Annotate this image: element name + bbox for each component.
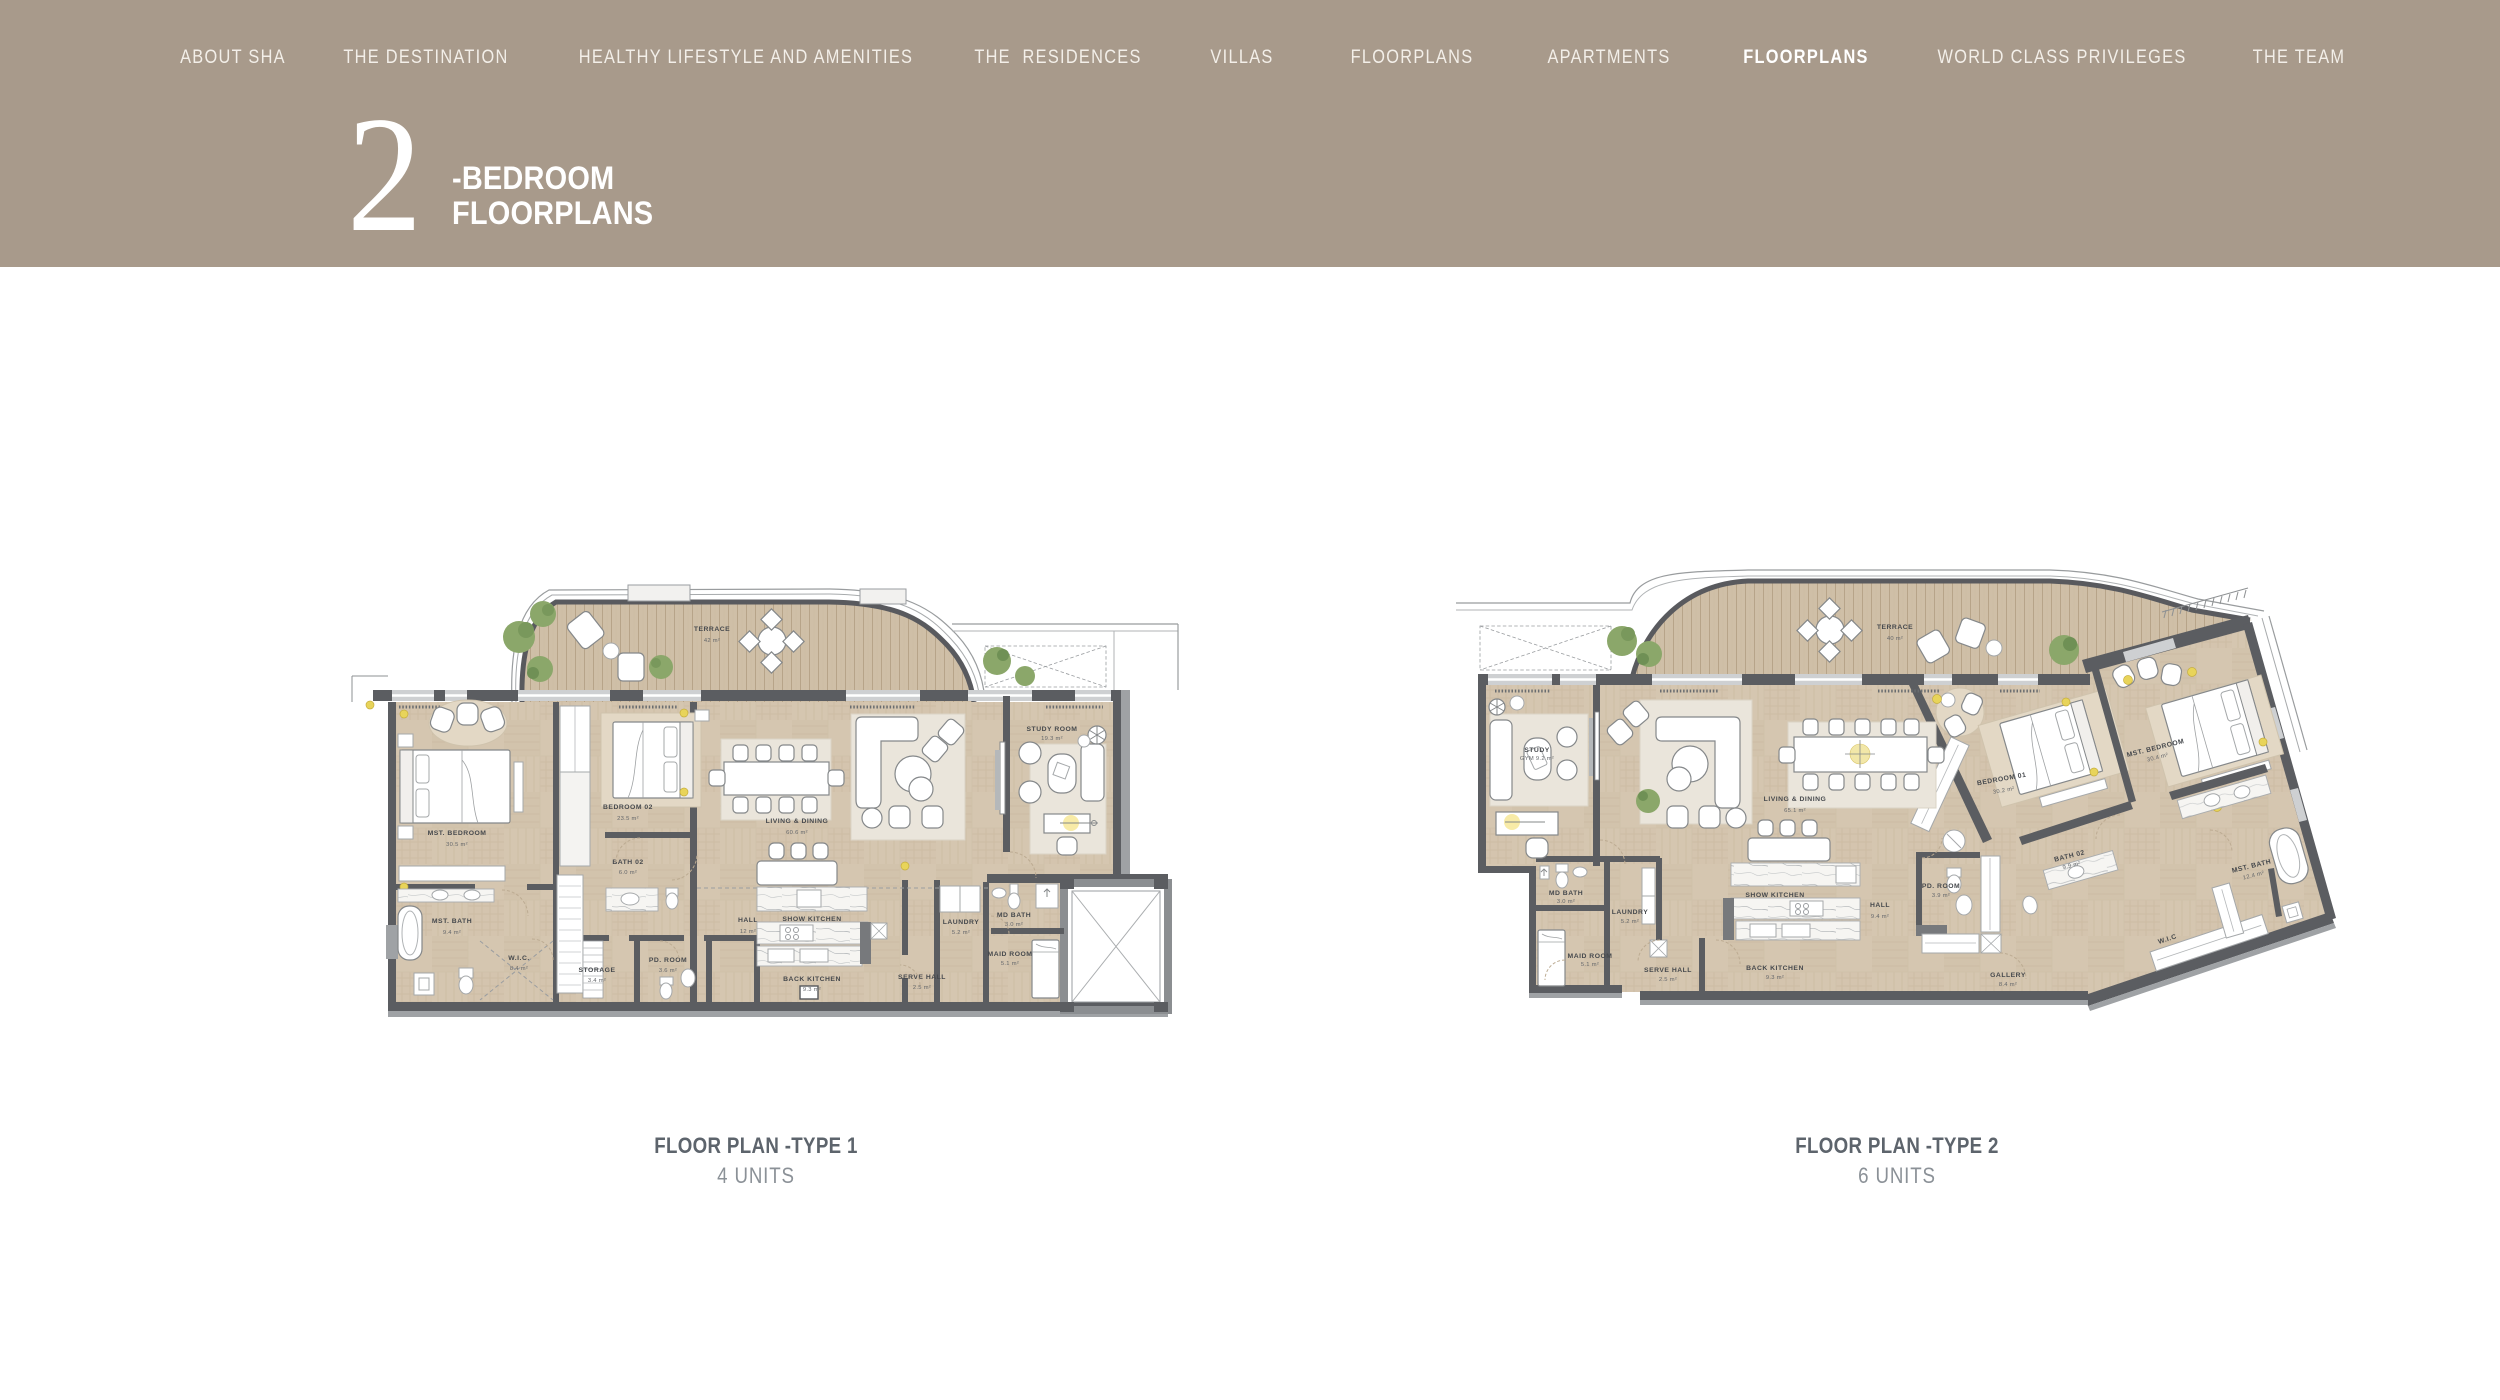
svg-text:9.3 m²: 9.3 m²	[803, 987, 821, 993]
svg-text:SERVE HALL: SERVE HALL	[1644, 967, 1692, 974]
svg-text:40 m²: 40 m²	[1887, 636, 1903, 642]
svg-text:3.9 m²: 3.9 m²	[1932, 893, 1950, 899]
svg-text:MST. BATH: MST. BATH	[432, 918, 472, 925]
svg-text:GALLERY: GALLERY	[1990, 972, 2026, 979]
svg-text:LIVING & DINING: LIVING & DINING	[766, 818, 829, 825]
svg-text:SERVE HALL: SERVE HALL	[898, 974, 946, 981]
svg-text:60.6 m²: 60.6 m²	[786, 830, 808, 836]
svg-text:12 m²: 12 m²	[740, 929, 756, 935]
svg-text:3.6 m²: 3.6 m²	[659, 968, 677, 974]
svg-text:LAUNDRY: LAUNDRY	[1612, 909, 1648, 916]
svg-text:LIVING & DINING: LIVING & DINING	[1764, 796, 1827, 803]
svg-text:STUDY ROOM: STUDY ROOM	[1027, 726, 1078, 733]
svg-text:65.1 m²: 65.1 m²	[1784, 808, 1806, 814]
svg-text:BEDROOM 02: BEDROOM 02	[603, 804, 653, 811]
svg-text:42 m²: 42 m²	[704, 638, 720, 644]
svg-text:5.2 m²: 5.2 m²	[952, 930, 970, 936]
svg-text:TERRACE: TERRACE	[694, 626, 730, 633]
svg-text:TERRACE: TERRACE	[1877, 624, 1913, 631]
svg-text:19.3 m²: 19.3 m²	[1041, 736, 1063, 742]
svg-text:9.3 m²: 9.3 m²	[1766, 975, 1784, 981]
svg-text:23.5 m²: 23.5 m²	[617, 816, 639, 822]
svg-text:MAID ROOM: MAID ROOM	[1568, 953, 1613, 960]
svg-text:MST. BEDROOM: MST. BEDROOM	[428, 830, 487, 837]
svg-text:3.4 m²: 3.4 m²	[588, 978, 606, 984]
svg-text:5.2 m²: 5.2 m²	[1621, 919, 1639, 925]
svg-text:MD BATH: MD BATH	[997, 912, 1031, 919]
svg-text:MAID ROOM: MAID ROOM	[988, 951, 1033, 958]
svg-text:5.1 m²: 5.1 m²	[1001, 961, 1019, 967]
svg-text:HALL: HALL	[1870, 902, 1890, 909]
svg-text:6.0 m²: 6.0 m²	[619, 870, 637, 876]
svg-text:HALL: HALL	[738, 917, 758, 924]
svg-text:8.4 m²: 8.4 m²	[1999, 982, 2017, 988]
svg-text:BATH 02: BATH 02	[612, 859, 643, 866]
svg-text:30.5 m²: 30.5 m²	[446, 842, 468, 848]
svg-text:MD BATH: MD BATH	[1549, 890, 1583, 897]
svg-text:5.1 m²: 5.1 m²	[1581, 962, 1599, 968]
svg-text:PD. ROOM: PD. ROOM	[649, 957, 687, 964]
svg-text:2.5 m²: 2.5 m²	[913, 985, 931, 991]
svg-text:9.4 m²: 9.4 m²	[443, 930, 461, 936]
svg-text:BACK KITCHEN: BACK KITCHEN	[1746, 965, 1804, 972]
svg-text:3.0 m²: 3.0 m²	[1557, 899, 1575, 905]
svg-text:STORAGE: STORAGE	[579, 967, 616, 974]
svg-text:GYM 9.2 m²: GYM 9.2 m²	[1520, 756, 1554, 762]
svg-text:BACK KITCHEN: BACK KITCHEN	[783, 976, 841, 983]
svg-text:W.I.C.: W.I.C.	[508, 955, 530, 962]
svg-text:8.4 m²: 8.4 m²	[510, 966, 528, 972]
svg-text:LAUNDRY: LAUNDRY	[943, 919, 979, 926]
svg-text:PD. ROOM: PD. ROOM	[1922, 883, 1960, 890]
svg-text:2.5 m²: 2.5 m²	[1659, 977, 1677, 983]
svg-text:9.4 m²: 9.4 m²	[1871, 914, 1889, 920]
svg-text:STUDY: STUDY	[1524, 747, 1550, 754]
